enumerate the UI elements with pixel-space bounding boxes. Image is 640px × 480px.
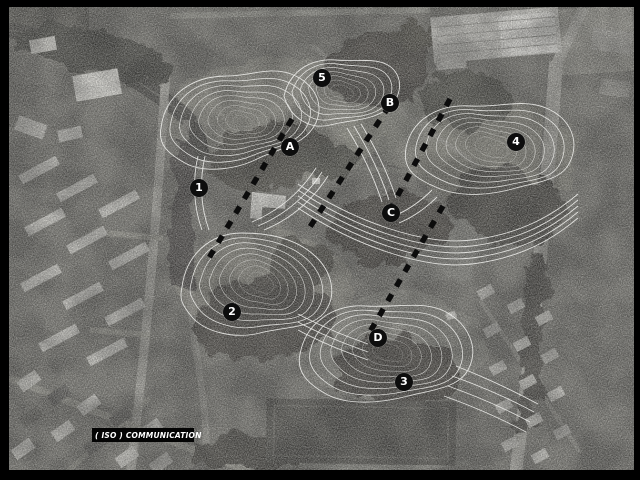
marker-label: A bbox=[286, 140, 295, 153]
marker-label: C bbox=[387, 206, 395, 219]
marker-label: 5 bbox=[318, 71, 326, 84]
marker-label: 2 bbox=[228, 305, 236, 318]
marker-section-c: C bbox=[382, 204, 400, 222]
marker-label: B bbox=[386, 96, 394, 109]
title-block: ( ISO ) COMMUNICATION Project General_Pl… bbox=[92, 428, 194, 470]
marker-point-2: 2 bbox=[223, 303, 241, 321]
marker-section-b: B bbox=[381, 94, 399, 112]
marker-point-5: 5 bbox=[313, 69, 331, 87]
aerial-photo: 1 2 3 4 5 A B C D ( ISO ) COMMUNICATION … bbox=[9, 7, 634, 470]
poster-frame: 1 2 3 4 5 A B C D ( ISO ) COMMUNICATION … bbox=[0, 0, 640, 480]
project-name: ( ISO ) COMMUNICATION bbox=[92, 428, 194, 442]
marker-label: 4 bbox=[512, 135, 520, 148]
marker-label: D bbox=[373, 331, 382, 344]
marker-section-d: D bbox=[369, 329, 387, 347]
marker-label: 3 bbox=[400, 375, 408, 388]
marker-point-4: 4 bbox=[507, 133, 525, 151]
marker-label: 1 bbox=[195, 181, 203, 194]
marker-section-a: A bbox=[281, 138, 299, 156]
marker-point-1: 1 bbox=[190, 179, 208, 197]
marker-point-3: 3 bbox=[395, 373, 413, 391]
